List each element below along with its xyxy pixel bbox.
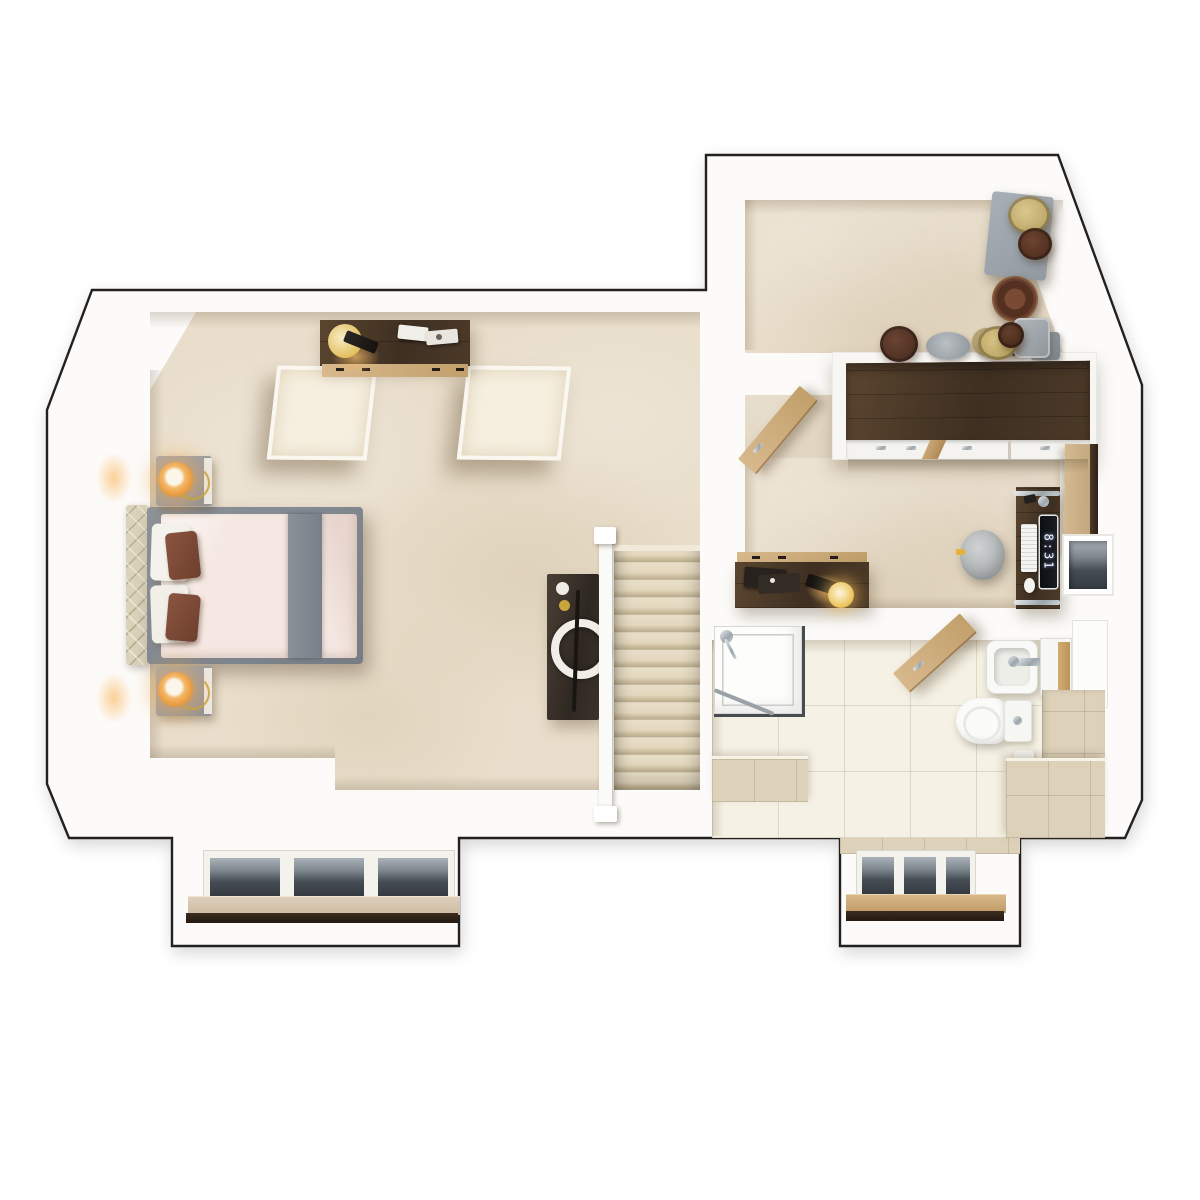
shadow-overlay [335, 776, 612, 790]
bed-runner [288, 514, 322, 658]
dresser-handle [432, 368, 440, 371]
basket [926, 332, 970, 360]
wall-window-glass [1069, 541, 1107, 589]
hat-box-brown [998, 322, 1024, 348]
dresser-handle [778, 556, 786, 559]
shadow-overlay [150, 744, 335, 758]
floor-plan-stage: 8:31 [0, 0, 1200, 1200]
dresser-handle [752, 556, 760, 559]
mixer-tap [1016, 658, 1042, 666]
bedside-lamp-ring [176, 676, 210, 710]
decor-dot-gold [559, 600, 570, 611]
decor-tray [397, 324, 428, 341]
dresser-handle [456, 368, 464, 371]
tiled-ledge-left [712, 756, 808, 802]
mixer-tap-base [1008, 656, 1019, 667]
wall-sconce [96, 672, 132, 724]
decor-dot-white [556, 582, 569, 595]
decor-tray [425, 329, 458, 346]
vanity-cabinet-oak-side [1058, 642, 1070, 692]
pouf-tag [956, 549, 965, 555]
desk-leg-bar [1014, 600, 1060, 605]
staircase [614, 545, 700, 790]
accent-pillow [165, 530, 202, 580]
dormer-window-mullions [210, 858, 448, 896]
wardrobe-handle [1040, 446, 1050, 450]
accent-pillow [165, 593, 201, 643]
decor-tray [758, 573, 801, 594]
desk-leg-bar [1014, 491, 1060, 496]
dormer-window-mullions [862, 857, 970, 894]
wardrobe-top [846, 361, 1090, 444]
hat-box-stack [992, 276, 1038, 322]
shadow-overlay [848, 459, 1088, 473]
tiled-bench-corner [1006, 758, 1105, 838]
skylight-well [267, 366, 378, 461]
newel-post [594, 806, 617, 822]
mouse [1024, 578, 1035, 593]
flush-button [1013, 716, 1022, 725]
wardrobe-handle [876, 446, 886, 450]
dresser-handle [830, 556, 838, 559]
wash-basin-bowl [994, 648, 1030, 686]
keyboard [1021, 524, 1037, 572]
desk-accessory [1038, 496, 1049, 507]
pouf-seat [960, 530, 1005, 580]
toilet-seat [963, 706, 1001, 742]
shadow-overlay [745, 200, 757, 350]
cone-desk-lamp [828, 582, 854, 608]
wardrobe-handle [906, 446, 916, 450]
wall-sconce [96, 452, 132, 504]
window-sill-shadow-strip [846, 911, 1004, 921]
decor-dot [770, 578, 775, 583]
newel-post [594, 527, 616, 544]
upholstered-headboard [126, 505, 148, 665]
wardrobe-door-seam [1008, 440, 1011, 459]
hat-box [880, 326, 918, 362]
window-sill-shadow-strip [186, 913, 458, 923]
bedside-lamp-ring [176, 466, 210, 500]
monitor-clock-display: 8:31 [1042, 534, 1056, 571]
monitor-clock: 8:31 [1040, 516, 1057, 588]
handrail [599, 531, 612, 813]
decor-dot [436, 334, 442, 340]
skylight-well [457, 366, 572, 461]
stair-top-nosing [614, 545, 700, 551]
hat-box-brown [1018, 228, 1052, 260]
wardrobe-handle [962, 446, 972, 450]
